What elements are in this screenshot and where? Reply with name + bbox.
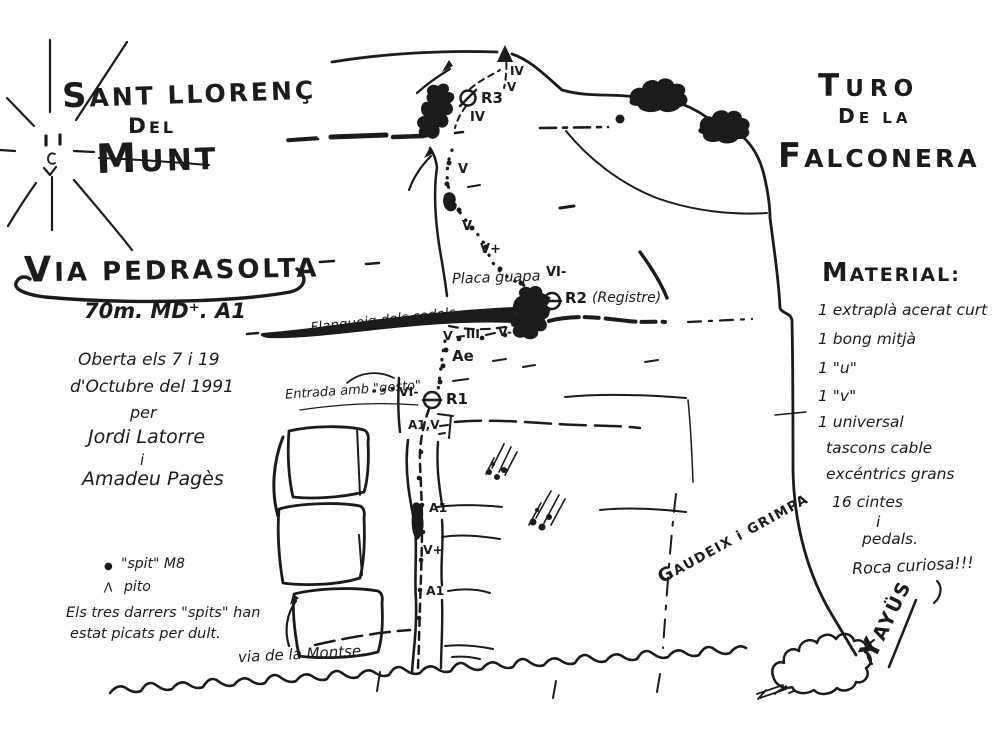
peak-title-line3: FALCONERA (778, 138, 980, 173)
spit-dot (445, 182, 450, 187)
legend-spit-label: "spit" M8 (121, 557, 185, 572)
upper-crack (430, 148, 447, 296)
peak-title-line1: TURO (818, 70, 919, 103)
route-dashed (455, 106, 466, 128)
sun-ray (74, 180, 132, 250)
material-item: i (876, 514, 880, 530)
ledge-line (445, 645, 493, 649)
legend-pito-label: pito (124, 580, 151, 595)
first-ascent-line: Amadeu Pagès (82, 470, 224, 490)
grade-label: V (458, 162, 468, 177)
massif-title-line3: MUNT (95, 134, 219, 181)
piton-symbol-icon: Λ (103, 581, 114, 596)
legend-note-line2: estat picats per dult. (70, 627, 221, 642)
legend-note-line1: Els tres darrers "spits" han (66, 606, 260, 621)
material-item: 1 "v" (818, 388, 856, 404)
ledge-dash (331, 135, 386, 137)
cliff-edge-stroke (274, 437, 283, 516)
hanging-plant (529, 491, 565, 531)
pointer-arrow (409, 156, 431, 190)
material-item: excéntrics grans (826, 466, 954, 482)
slope-line (300, 404, 418, 410)
spit-symbol-icon: ● (104, 562, 113, 573)
ledge-dashdot (688, 319, 752, 322)
ledge-band-right (549, 317, 665, 322)
ledge-dash (453, 379, 468, 381)
ledge-dash (366, 263, 379, 264)
grade-label: A1 (426, 583, 444, 598)
climbing-topo: SANT LLORENÇ DEL MUNT VIA PEDRASOLTA 70m… (0, 0, 1000, 750)
spit-dot (419, 450, 424, 455)
ledge-dash (288, 138, 316, 140)
plant-blob (494, 474, 500, 480)
material-item: pedals. (862, 531, 918, 547)
sun-ray (8, 183, 36, 226)
material-item: 1 extraplà acerat curt (818, 302, 987, 318)
ledge-dash (455, 132, 463, 133)
ground-scallops (110, 646, 746, 693)
ledge-dash (560, 206, 574, 208)
grade-label: V+ (480, 242, 501, 257)
plant-blob (539, 524, 546, 531)
grade-label: V (507, 80, 516, 94)
spit-dot (447, 161, 452, 166)
grade-label: A1,V (408, 418, 439, 432)
route-dashed (470, 70, 500, 89)
bush (417, 84, 454, 139)
hanging-plant (486, 444, 517, 480)
arrows (287, 60, 453, 646)
sun-ray (74, 151, 94, 152)
bush (616, 115, 625, 124)
lower-crack-left (407, 440, 416, 672)
spit-dot (457, 337, 462, 342)
grade-label: IV (470, 110, 485, 125)
ledge-dash (247, 333, 258, 334)
ledge-dash (320, 261, 334, 262)
ledge-dash (493, 359, 506, 361)
placa-label: Placa guapa (452, 269, 541, 287)
ledge-dash (645, 360, 658, 362)
grade-label: Ae (452, 347, 474, 365)
belay-label-r2: R2 (565, 289, 587, 307)
first-ascent-line: Jordi Latorre (88, 428, 205, 448)
material-item: 1 universal (818, 414, 904, 430)
grade-label: V+ (423, 542, 443, 557)
route-dashed (418, 409, 429, 670)
peak-title-line2: DE LA (838, 106, 911, 127)
first-ascent-line: Oberta els 7 i 19 (78, 352, 220, 370)
first-ascent-line: d'Octubre del 1991 (70, 379, 234, 397)
cliff-face-line (565, 395, 686, 398)
sun-mouth (44, 167, 56, 175)
ledge-dash (468, 185, 480, 187)
route-specs: 70m. MD⁺. A1 (84, 300, 246, 322)
ground-tick (553, 681, 556, 698)
spit-dot (457, 208, 462, 213)
spit-dot (417, 476, 422, 481)
ledge-line (442, 536, 500, 539)
route-line (374, 45, 676, 670)
grade-label: V (462, 219, 472, 234)
first-ascent-line: i (140, 453, 144, 469)
first-ascent-line: per (130, 405, 157, 422)
material-item: 1 "u" (818, 360, 857, 376)
cliff-face-line (566, 131, 767, 214)
ground-tick (657, 674, 660, 692)
block (278, 504, 364, 585)
sun-nose (48, 153, 55, 163)
grade-label: V- (498, 324, 512, 339)
registre-note: (Registre) (592, 291, 661, 306)
spit-dot (441, 364, 446, 369)
spit-dot (421, 530, 426, 535)
ledge-dash (439, 425, 448, 434)
block (288, 427, 368, 498)
ledge-dashdot (540, 127, 608, 128)
cliff-face-line (688, 400, 693, 482)
spit-dot (418, 588, 423, 593)
grade-label: A1 (429, 500, 447, 515)
spit-dot (419, 558, 424, 563)
material-item: tascons cable (826, 440, 932, 456)
rock-blocks (274, 427, 410, 658)
ledge-line (455, 421, 640, 428)
ledge-dash (393, 136, 423, 137)
cliff-face-line (775, 412, 806, 415)
block-joint (357, 428, 360, 495)
spit-dot (444, 348, 449, 353)
belay-label-r3: R3 (481, 89, 503, 107)
spit-dot (420, 503, 425, 508)
ground-line (110, 646, 746, 698)
ledge-dash (523, 365, 535, 367)
route-name: VIA PEDRASOLTA (24, 247, 320, 289)
grade-label: III (466, 326, 480, 341)
spit-dot (417, 616, 422, 621)
grade-label: IV (510, 64, 524, 78)
ledge-line (448, 589, 490, 593)
ledge-line (452, 657, 480, 659)
grade-label: V (443, 328, 453, 343)
spit-dot (480, 336, 485, 341)
grade-label: VI- (546, 265, 566, 280)
material-item: 16 cintes (832, 494, 903, 510)
belay-label-r1: R1 (446, 390, 468, 408)
grade-label: VI- (399, 384, 419, 399)
ground-bush-cloud (772, 634, 870, 694)
sun-ray (0, 150, 15, 151)
material-heading: MATERIAL: (822, 260, 961, 287)
signature-paren (934, 581, 941, 603)
spit-dot (438, 380, 443, 385)
material-item: 1 bong mitjà (818, 331, 916, 347)
sun-ray (7, 98, 34, 126)
bush (629, 78, 687, 112)
